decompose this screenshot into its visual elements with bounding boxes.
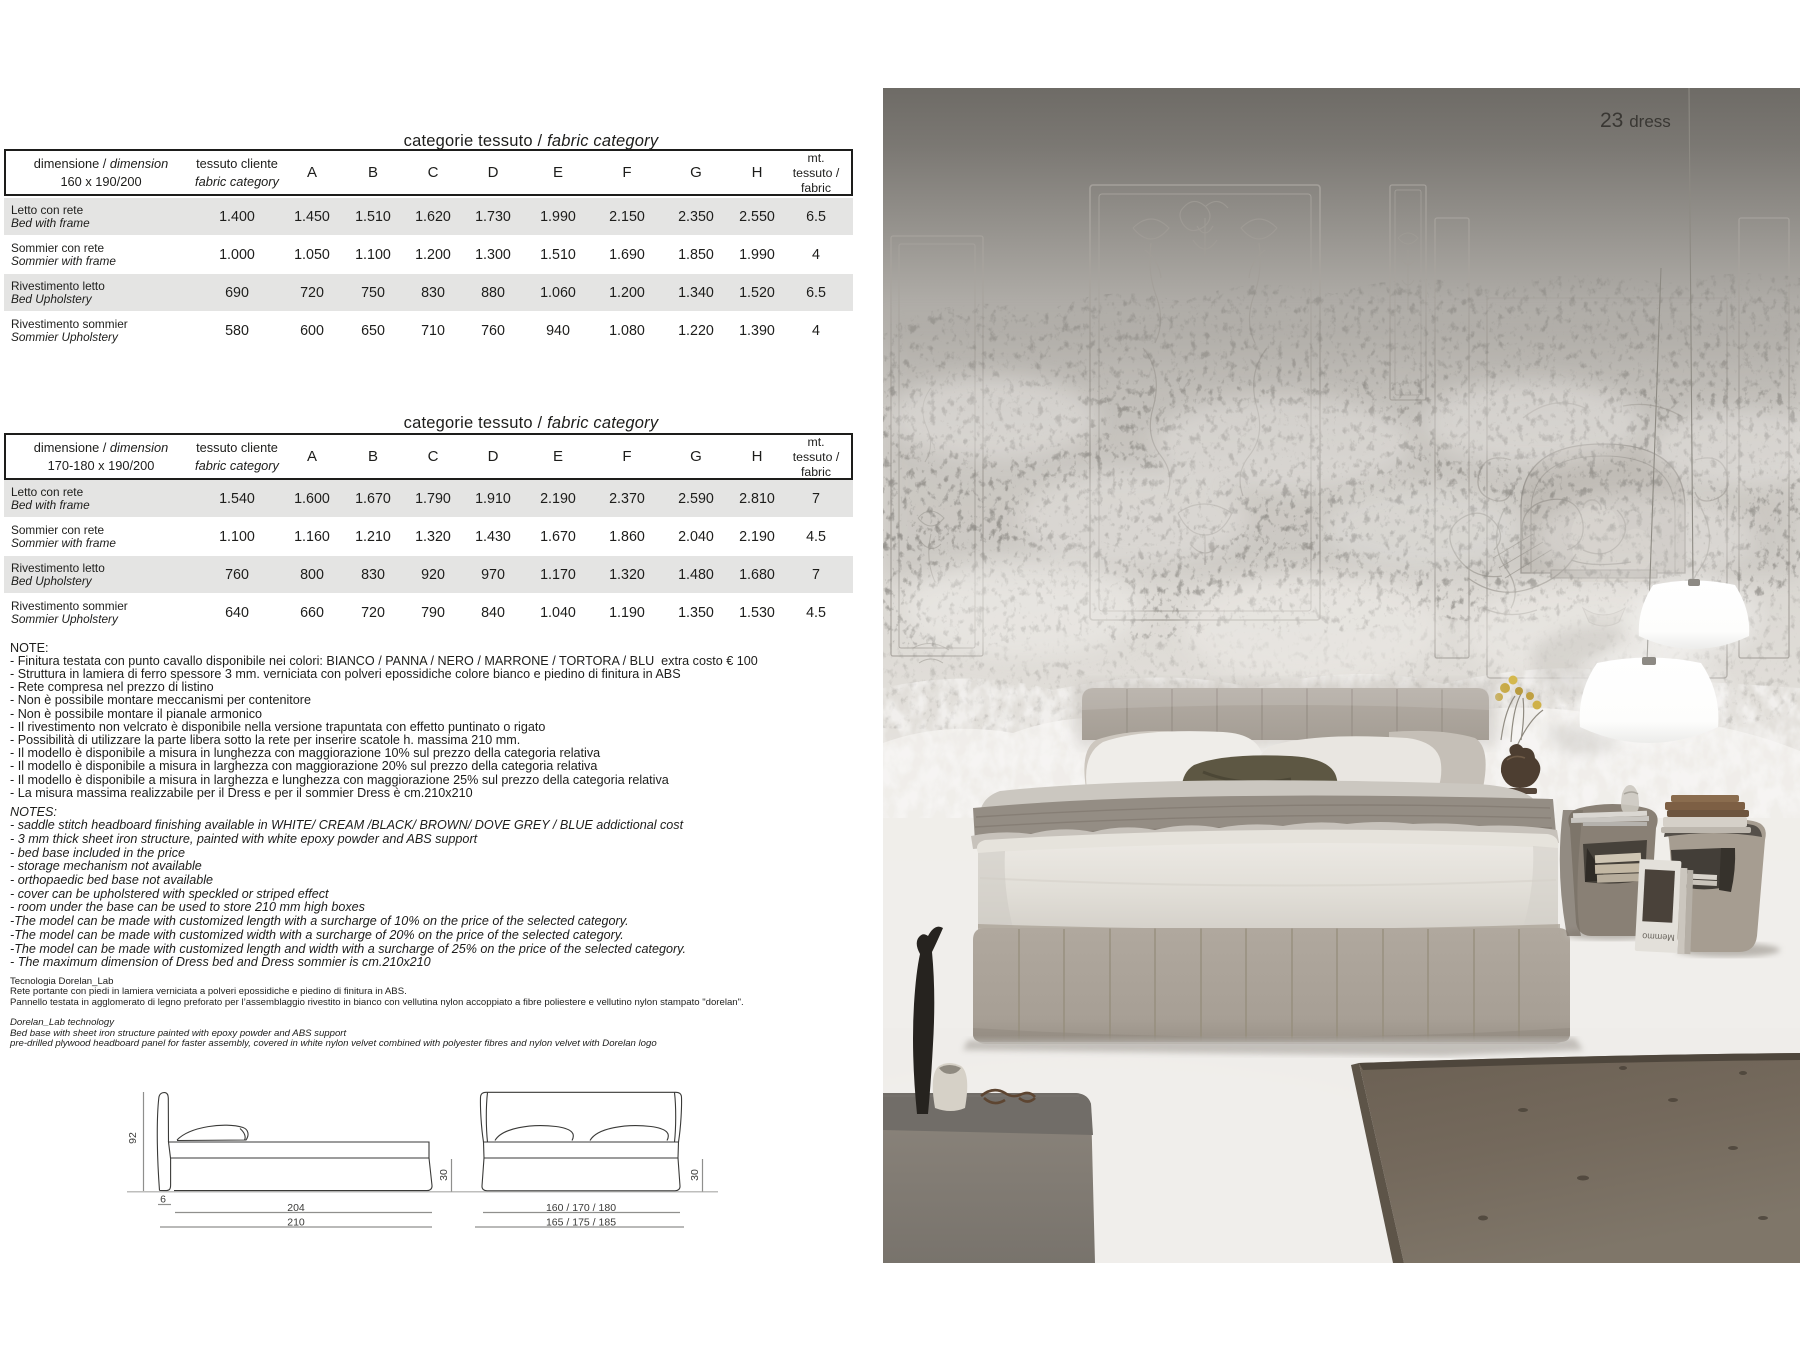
svg-text:30: 30 <box>438 1169 450 1181</box>
svg-text:210: 210 <box>287 1217 305 1229</box>
svg-text:92: 92 <box>127 1132 139 1144</box>
svg-text:6: 6 <box>160 1194 166 1206</box>
svg-text:30: 30 <box>689 1169 701 1181</box>
svg-text:160 / 170 / 180: 160 / 170 / 180 <box>546 1202 616 1214</box>
svg-text:204: 204 <box>287 1202 305 1214</box>
svg-text:Memmo: Memmo <box>1642 931 1675 943</box>
svg-text:165 / 175 / 185: 165 / 175 / 185 <box>546 1217 616 1229</box>
